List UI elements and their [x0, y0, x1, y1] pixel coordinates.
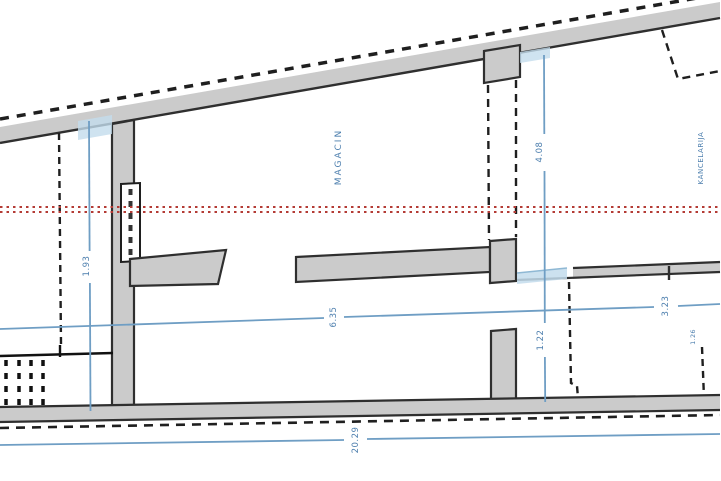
floor-plan-linework [0, 0, 721, 481]
far-right-dashed-line [702, 347, 704, 398]
dimension-left-vertical: 1.93 [82, 256, 92, 277]
top-wall-dashed-edge [0, 0, 720, 119]
dimension-bottom-overall: 20.29 [351, 427, 361, 454]
center-partition-right [296, 247, 490, 282]
room-label-right: KANCELARIJA [697, 132, 705, 185]
wall-opening-dashed-lines [488, 80, 516, 240]
room-label-center: MAGACIN [334, 129, 344, 185]
top-right-dashed-notch [662, 30, 720, 79]
dimension-center-horizontal: 6.35 [329, 307, 339, 328]
opening-highlight-mid-right [517, 268, 567, 284]
left-long-dashed-line [59, 133, 61, 344]
dimension-right-horizontal: 3.23 [661, 296, 671, 317]
floor-plan-canvas: MAGACIN KANCELARIJA 1.93 4.08 1.22 6.35 … [0, 0, 721, 481]
dimension-right-small: 1.26 [689, 329, 697, 345]
dimension-right-vertical-upper: 4.08 [535, 142, 545, 163]
left-wall-door-symbol [121, 183, 140, 262]
top-wall-stub [484, 45, 520, 83]
right-partition-upper [490, 239, 516, 283]
red-reference-lines [0, 207, 720, 212]
right-partition-lower [491, 329, 516, 405]
dimension-right-vertical-lower: 1.22 [536, 330, 546, 351]
stairs [0, 345, 113, 405]
center-partition-left [130, 250, 226, 286]
mid-right-dashed-line [569, 282, 578, 398]
